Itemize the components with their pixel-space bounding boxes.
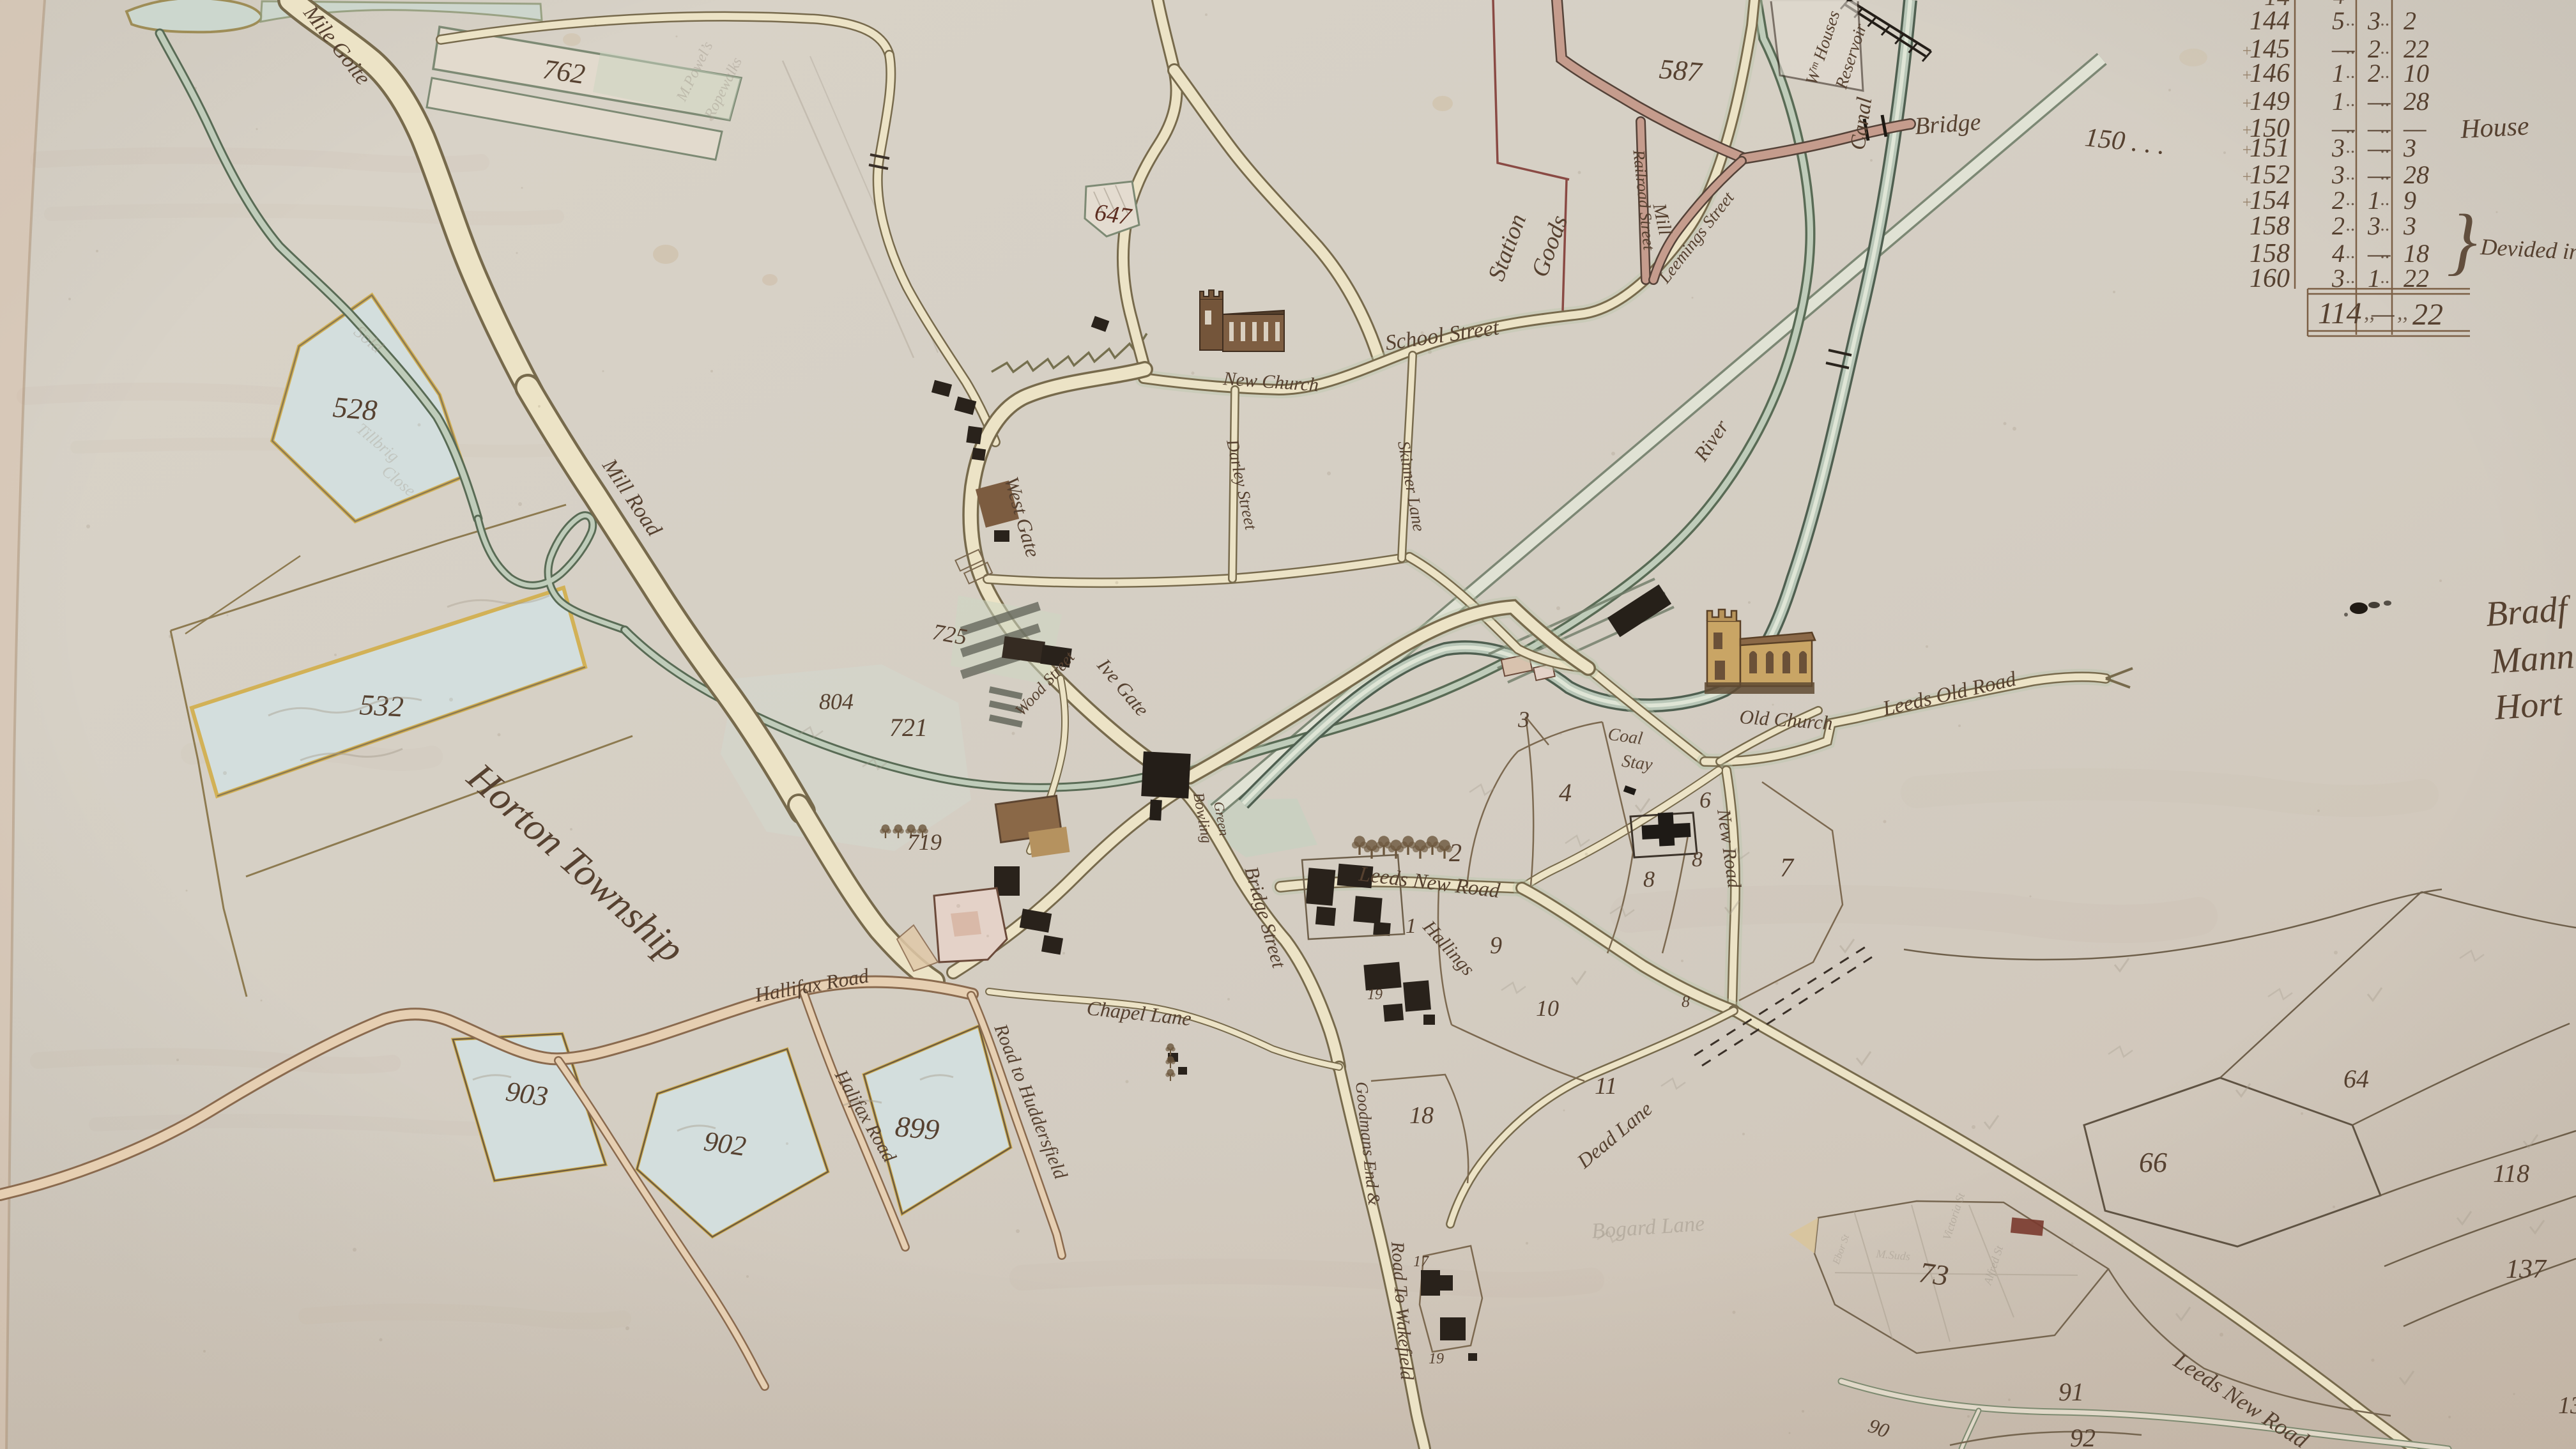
svg-text:5: 5 xyxy=(2332,6,2345,35)
svg-text:..: .. xyxy=(2346,214,2356,235)
svg-text:7: 7 xyxy=(1780,854,1795,883)
svg-text:160: 160 xyxy=(2250,264,2290,293)
svg-text:..: .. xyxy=(2380,9,2390,30)
svg-text:4: 4 xyxy=(2333,0,2345,9)
svg-text:762: 762 xyxy=(541,53,587,90)
svg-text:11: 11 xyxy=(1595,1073,1617,1100)
svg-text:10: 10 xyxy=(1536,995,1559,1021)
svg-text:..: .. xyxy=(2380,214,2390,235)
svg-text:146: 146 xyxy=(2250,59,2290,88)
svg-text:902: 902 xyxy=(702,1125,748,1162)
svg-text:8: 8 xyxy=(1643,866,1655,892)
svg-text:2: 2 xyxy=(1449,838,1462,867)
svg-text:2: 2 xyxy=(2403,6,2416,35)
svg-text:..: .. xyxy=(2346,9,2356,30)
svg-text:91: 91 xyxy=(2058,1377,2084,1406)
svg-text:13: 13 xyxy=(2558,1392,2576,1419)
svg-text:3: 3 xyxy=(2403,211,2416,240)
svg-text:4: 4 xyxy=(1559,778,1572,807)
svg-text:9: 9 xyxy=(1490,932,1502,959)
svg-text:..: .. xyxy=(2346,116,2356,137)
svg-text:..: .. xyxy=(2380,136,2390,157)
svg-text:3: 3 xyxy=(2331,264,2345,293)
svg-text:..: .. xyxy=(2380,241,2390,263)
svg-text:137: 137 xyxy=(2506,1255,2547,1284)
svg-text:..: .. xyxy=(2346,61,2356,82)
svg-text:House: House xyxy=(2459,111,2530,144)
svg-text:721: 721 xyxy=(889,713,928,742)
svg-text:..: .. xyxy=(2380,266,2390,287)
svg-text:8: 8 xyxy=(1682,992,1690,1011)
svg-text:..: .. xyxy=(2346,188,2356,210)
svg-text:28: 28 xyxy=(2403,87,2429,116)
svg-text:2: 2 xyxy=(2332,186,2345,215)
svg-text:22: 22 xyxy=(2403,264,2429,293)
svg-text:114: 114 xyxy=(2318,296,2361,330)
svg-text:..: .. xyxy=(2346,163,2356,184)
svg-text:Bradf: Bradf xyxy=(2485,589,2573,634)
svg-text:3: 3 xyxy=(2403,134,2416,162)
svg-text:8: 8 xyxy=(1692,848,1703,871)
svg-text:647: 647 xyxy=(1093,199,1134,231)
svg-text:719: 719 xyxy=(907,829,942,855)
svg-text:149: 149 xyxy=(2250,87,2290,116)
svg-text:..: .. xyxy=(2346,136,2356,157)
svg-text:73: 73 xyxy=(1917,1255,1951,1292)
svg-text:118: 118 xyxy=(2493,1159,2529,1188)
svg-text:..: .. xyxy=(2346,241,2356,263)
svg-text:1: 1 xyxy=(1406,914,1416,938)
svg-text:28: 28 xyxy=(2403,160,2429,189)
svg-text:19: 19 xyxy=(1367,986,1383,1003)
svg-text:,,: ,, xyxy=(2397,301,2408,325)
svg-text:22: 22 xyxy=(2412,298,2443,332)
svg-text:Mann: Mann xyxy=(2489,636,2576,682)
svg-text:9: 9 xyxy=(2403,186,2416,215)
svg-text:..: .. xyxy=(2380,37,2390,58)
svg-text:3: 3 xyxy=(2331,160,2345,189)
svg-text:3: 3 xyxy=(2367,6,2380,35)
svg-text:3: 3 xyxy=(2331,134,2345,162)
svg-text:587: 587 xyxy=(1658,53,1704,88)
svg-text:..: .. xyxy=(2346,89,2356,111)
svg-text:3: 3 xyxy=(1517,707,1529,732)
svg-text:..: .. xyxy=(2380,61,2390,82)
svg-text:1: 1 xyxy=(2368,264,2380,293)
svg-text:151: 151 xyxy=(2250,134,2290,163)
svg-text:2: 2 xyxy=(2368,59,2380,88)
svg-text:10: 10 xyxy=(2403,59,2429,88)
svg-text:17: 17 xyxy=(1413,1253,1429,1270)
svg-text:1: 1 xyxy=(2368,186,2380,215)
svg-text:804: 804 xyxy=(819,689,854,714)
svg-text:6: 6 xyxy=(1699,787,1711,813)
svg-text:66: 66 xyxy=(2139,1147,2167,1178)
svg-text:64: 64 xyxy=(2343,1064,2369,1093)
svg-text:}: } xyxy=(2447,199,2477,282)
svg-text:Bridge: Bridge xyxy=(1914,109,1982,140)
svg-text:528: 528 xyxy=(332,390,378,427)
svg-text:903: 903 xyxy=(504,1075,550,1112)
svg-text:899: 899 xyxy=(894,1110,940,1146)
svg-text:158: 158 xyxy=(2250,211,2290,241)
svg-text:..: .. xyxy=(2346,266,2356,287)
svg-text:1: 1 xyxy=(2332,59,2345,88)
svg-text:Hort: Hort xyxy=(2493,684,2564,728)
svg-text:..: .. xyxy=(2380,89,2390,111)
svg-text:..: .. xyxy=(2380,163,2390,184)
svg-text:—: — xyxy=(2371,299,2395,328)
svg-text:..: .. xyxy=(2380,188,2390,210)
svg-text:3: 3 xyxy=(2367,211,2380,240)
svg-text:1: 1 xyxy=(2332,87,2345,116)
svg-text:..: .. xyxy=(2346,37,2356,58)
svg-text:19: 19 xyxy=(1429,1351,1444,1367)
svg-text:2: 2 xyxy=(2332,211,2345,240)
svg-text:92: 92 xyxy=(2070,1423,2096,1449)
svg-text:14: 14 xyxy=(2264,0,2290,11)
svg-text:18: 18 xyxy=(1409,1102,1434,1129)
